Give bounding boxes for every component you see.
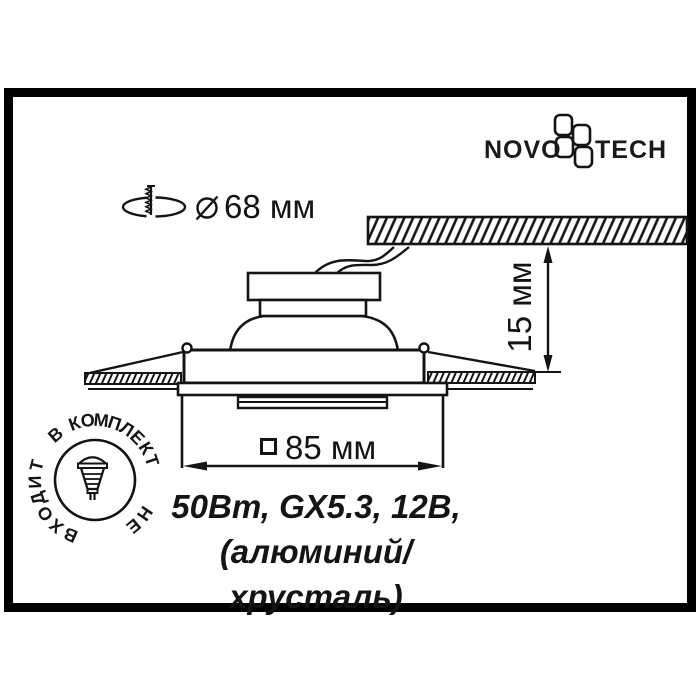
ceiling-section xyxy=(368,217,687,244)
clip-pivot-right xyxy=(420,344,429,353)
stamp-circle xyxy=(55,440,135,520)
clip-pivot-left xyxy=(183,344,192,353)
mr16-lamp-icon xyxy=(78,457,107,500)
ceiling-hole-drill-icon xyxy=(123,184,185,218)
width-arrow-left xyxy=(183,462,207,471)
lamp-holder xyxy=(248,273,380,300)
trim-body xyxy=(184,350,424,383)
spec-line-2: (алюминий/хрусталь) xyxy=(140,529,492,619)
stamp-letter: Т xyxy=(26,458,48,474)
ceiling-strip-right xyxy=(428,372,535,383)
ceiling-strip-left xyxy=(85,373,181,384)
cutout-diameter-label: 68 мм xyxy=(224,190,315,223)
product-diagram: ВКОМПЛЕКТНЕВХОДИТ 68 мм 15 мм 85 мм 50Вт… xyxy=(0,0,700,700)
brand-name-right: TECH xyxy=(595,138,667,163)
wire-line-1 xyxy=(314,247,394,274)
spring-clip-left xyxy=(85,352,183,374)
spec-text: 50Вт, GX5.3, 12В, (алюминий/хрусталь) xyxy=(140,484,492,619)
depth-arrow-up xyxy=(544,246,553,263)
stamp-letter: В xyxy=(44,423,67,447)
flange-plate xyxy=(178,383,447,395)
diameter-icon xyxy=(197,197,218,220)
lamp-holder-neck xyxy=(260,300,366,316)
reflector-bell xyxy=(230,316,398,351)
spec-line-1: 50Вт, GX5.3, 12В, xyxy=(140,484,492,529)
brand-name-left: NOVO xyxy=(484,138,562,163)
square-symbol-icon xyxy=(260,438,277,455)
width-arrow-right xyxy=(418,462,442,471)
recess-depth-label: 15 мм xyxy=(503,247,537,367)
stamp-letter: И xyxy=(25,475,45,489)
width-dimension-label: 85 мм xyxy=(285,431,376,464)
depth-arrow-down xyxy=(544,355,553,372)
